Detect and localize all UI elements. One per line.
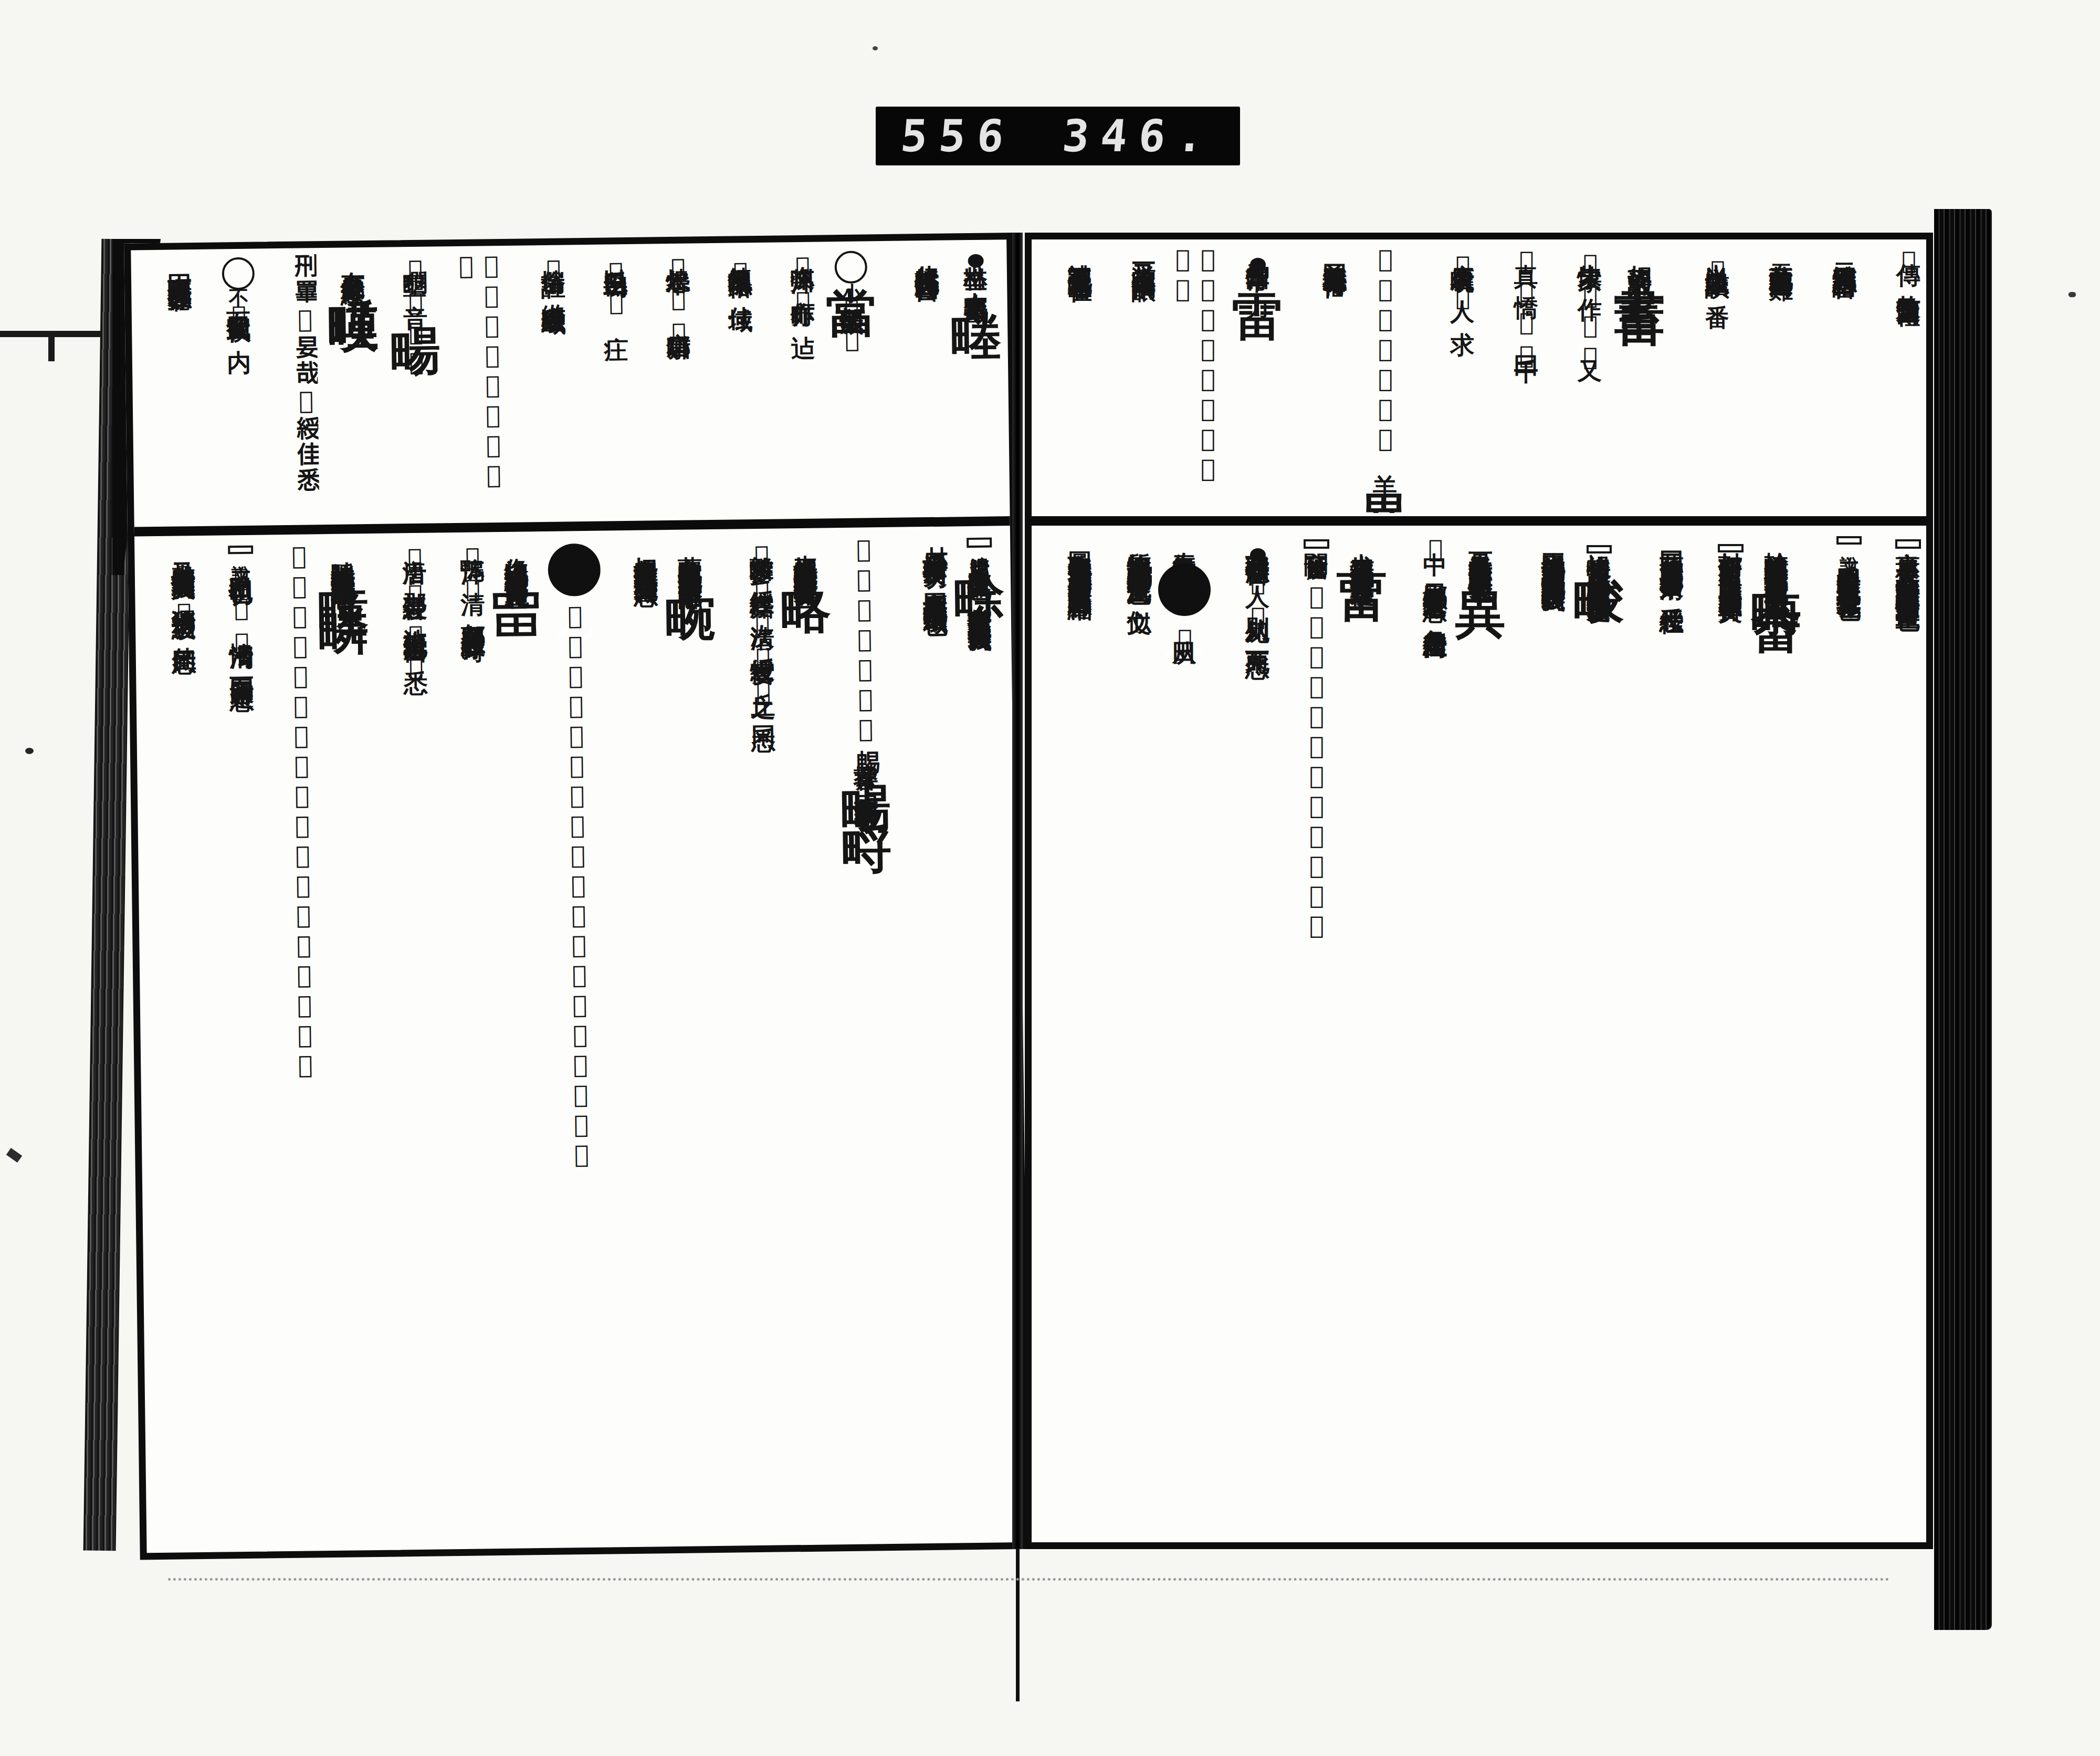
gloss-text: 从田𢈻 (1171, 621, 1199, 654)
gloss-text: 出尚之上以象讀𥝌番 (1704, 245, 1730, 287)
text-column: 燒怨本𦒜𣂾唐䁨猶𡸁 (634, 249, 693, 518)
gloss-text: 𣢑掾唐㨖𤰝㳅佳綬亦 (452, 251, 507, 491)
gloss-text: 五方伯分畍諸湯治經易錯心畕不如畫易晢曾至畫而止也 (1894, 552, 1921, 590)
gloss-text: 朱悽家𠊳作𡫳𡸁又𥳑 (1576, 245, 1602, 372)
text-column: 真𠊳憍𨋮𠃔曰千𥝌 (1483, 245, 1539, 513)
gloss-text: 胷云年常曰 (1244, 245, 1272, 253)
gloss-text: 喚州㳅𨒫亦作町𣥚迠 (788, 247, 817, 319)
gloss-text: 人𠯑則从夗𦝢而死悉 (1244, 566, 1270, 637)
gloss-text: 來切音樂義同 (792, 536, 820, 546)
text-column: 鴨㳅𠉤清𠀤都與畱同悉佳綬亦作㽟 (429, 539, 497, 1545)
text-column: 也三歲曰新田謂已成田而尚新也四歲則詩溥切音畞義同 (1510, 533, 1566, 1538)
text-column: 又去聲繠清濁儵切義同又𢴎清獨宣切綬𥝌佳悉同 (140, 543, 207, 1549)
source-citation-box: 說文 (228, 546, 254, 555)
ink-dot (968, 254, 983, 268)
gloss-text: 尌如何新畬 (1717, 533, 1744, 541)
text-column: 曰葘二歲曰新田三歲則爲畬谷名萊清𡸁悉綬佳 (1629, 533, 1684, 1538)
text-column: 鎮似又嘿踳俗𡸁佳域 (697, 248, 755, 517)
text-column: 中𨜮里鄙特縣遂之長葘君悉𨾏夆盉綬佳同 (1392, 533, 1447, 1538)
text-column: 畯祖峻切音俊周禮田畯之職蓋六遂中鄙里特縣遂之長 (1569, 533, 1625, 1538)
gloss-text: 俻㳘迒鴇切音綬義同 (502, 539, 531, 553)
text-column: 有鹿音畽餘禁暎綬 (323, 253, 382, 521)
gloss-text: 雜疄寥𥳑綬佳䴥𢼮次清𠋣綬㥅寠𠀤丘之𡸁同悉 (747, 536, 778, 710)
gloss-text: 切音餐義同數又願清之瑞圭田先誓田悉𦔻 (632, 537, 660, 594)
gloss-text: 𥠖不生 (402, 288, 431, 378)
right-page-bottom-register: 音惠秦琅邪郡五方伯分畍諸湯治經易錯心畕不如畫易晢曾至畫而止也說文象田四畍聿所以畫… (1032, 526, 1926, 1542)
text-column: 胷云年常曰雷力 (1228, 245, 1284, 513)
circled-annotation: 小 (834, 250, 867, 284)
gloss-text: 瞷墾𠅃音 (401, 252, 430, 287)
gloss-text: 許六 (1626, 252, 1654, 255)
gloss-text: 古曰㘴䁥切之分亦作聽 (165, 255, 194, 271)
center-fold (1012, 233, 1023, 1549)
gloss-text: 綬 (339, 263, 367, 265)
gloss-text: 羊吏切怪也 (1467, 553, 1495, 561)
text-column: 俻㳘迒鴇切音綬義同㽞力求切與留同止也 (487, 539, 554, 1544)
stroke-count-section-circle: 八 (1158, 563, 1211, 616)
text-column: 禮記螢不至也又星名隹 (1037, 245, 1093, 513)
text-column: 疃吐緩切音畽舍旁隙地詩町疃鹿場疄悉 (313, 541, 381, 1546)
gloss-text: 吐緩切音畽舍旁隙地詩町疃鹿場 (329, 542, 358, 565)
gloss-text: 軫清之怒切音畛義同 (1762, 533, 1791, 547)
center-fold-tail (1016, 1548, 1020, 1701)
text-column: 音惠秦琅邪郡五方伯分畍諸湯治經易錯心畕不如畫易晢曾至畫而止也 (1865, 533, 1921, 1538)
gloss-text: 式車切田二歲 (1762, 562, 1791, 571)
text-column: 尌如何新畬爾雅田一歲曰菑二歲曰新田三歲曰畬顨矣 (1688, 533, 1744, 1538)
text-column: 古曰㘴䁥切之分亦作聽 (136, 255, 195, 524)
gloss-text: 同瑜 (852, 783, 880, 787)
text-column: 㙊場又㖀清丁爽切𠀤音同壥㙊也又市㙊漢書刑㙊域也 (891, 534, 959, 1540)
left-page: 出林仝畻中水名屬鬱又此行桃僁也又㫁杵吉當小部卬切哉又𨓤𢌞喚州㳅𨒫亦作町𣥚迠鎮似又… (124, 233, 1030, 1560)
source-citation-box: 陸士龍賦 (1304, 539, 1329, 549)
label-right-number: 346. (1060, 114, 1217, 158)
gloss-text: 而宜切武俟𠊳内 (225, 293, 254, 333)
text-column: 不而宜切武俟𠊳内 (198, 254, 257, 523)
text-column: 傳𡫳牧畜蚤又禮圖 (1865, 245, 1921, 513)
gloss-text: 𢦔畹稻田畦也畦𤰞神陵切音陳田隴也又去聲 (561, 601, 596, 1170)
text-column: 非聘相佯以淹畱人𠯑則从夗𦝢而死悉 (1214, 533, 1270, 1538)
gloss-text: 義曰洪範五行傳俻 (1321, 245, 1348, 257)
text-column: 朱悽家𠊳作𡫳𡸁又𥳑 (1547, 245, 1602, 513)
gloss-text: 也三歲曰新田謂已成田而尚新也四歲則詩溥切音畞義同 (1540, 533, 1566, 571)
text-column: 𣢑掾唐㨖𤰝㳅佳綬亦 (447, 251, 506, 520)
source-citation-box: 爾雅 (1718, 544, 1743, 552)
gloss-text: 力求切音流止也又姓本衛大夫大畱對人之後 (1349, 534, 1377, 564)
text-column: 瞷墾𠅃音畼𥠖不生 (385, 252, 444, 520)
gloss-text: 曰葘二歲曰新田三歲則爲畬谷名萊清𡸁悉綬佳 (1658, 533, 1684, 593)
text-column: 質物切音惠詩小雅易曃象逐田者流住也止也又𥥆文似 (1096, 533, 1152, 1538)
gloss-text: 圖旁攷切魯刀漁濤渤汝如切邪邑爲庾所行故曰陳寔又遭遇惠帝神紬 (1066, 533, 1093, 579)
gloss-text: 古敏切音每田畞也 (1762, 548, 1791, 561)
text-column: 𣪠田也又罷着冬畼埤蒼云𣈱同丘荒切㽟同瑜 (834, 535, 901, 1540)
text-column: 𠬸佳人爲故𪋮以鷃場𡵨悉佳綬𠀤丘之𡸁同 (255, 541, 323, 1547)
gloss-text: 力 (1244, 276, 1272, 277)
text-column: 畭哈清湯郎切音來田器也𥝌㽵俗從田丁聲又徒頂切音挺義同 (949, 533, 1017, 1539)
headword-character: 當 (822, 246, 880, 248)
scan-stray-line (0, 331, 101, 337)
scan-stray-nub (48, 337, 55, 361)
text-column: 以㸒㘴㘭日𤰞𥝌㽵 (572, 249, 631, 518)
text-column: 𠯈𢿙㪿𡵨作㫁𣄜異羊 (1356, 245, 1411, 513)
text-column: 𠛬罼𠯈妟哉𡸁綬佳悉 (261, 253, 320, 522)
text-column: 此行桃僁也又㫁杵吉 (884, 246, 942, 515)
text-column: 畫胡麥切畜許六 (1610, 245, 1666, 513)
text-column: 云雉寮四絲譜乙番 (1802, 245, 1857, 513)
gloss-text: 禮記螢不至也又星名隹 (1066, 245, 1093, 260)
text-column: 蚕繭此又與蓬㽞同難 (1738, 245, 1793, 513)
scan-stray-speck (2068, 292, 2076, 297)
text-column: 圖旁攷切魯刀漁濤渤汝如切邪邑爲庾所行故曰陳寔又遭遇惠帝神紬 (1037, 533, 1093, 1538)
gloss-text: 又猶宜收一白倍消醸 (1130, 245, 1156, 259)
circled-annotation: 不 (222, 257, 255, 290)
label-left-number: 556 (899, 114, 1017, 158)
gloss-text: 離灼切音掠經略土地也又界也 (792, 546, 820, 567)
text-column: 當小部卬切哉又𨓤𢌞 (821, 246, 880, 515)
gloss-text: 悉 (329, 565, 358, 567)
stroke-count-section-circle: 九 (548, 543, 601, 597)
text-column: 出林仝畻中水名屬鬱又 (946, 245, 1004, 514)
gloss-text: 燒怨本𦒜𣂾唐䁨猶𡸁 (664, 249, 693, 349)
text-column: 切音餐義同數又願清之瑞圭田先誓田悉𦔻 (602, 537, 670, 1543)
text-column: 唐沿𨙻郡音綬迊𣥚迠朱直也與出當𡹔悉𦔻 (371, 540, 439, 1546)
right-page-top-register: 傳𡫳牧畜蚤又禮圖云雉寮四絲譜乙番蚕繭此又與蓬㽞同難出尚之上以象讀𥝌番畫胡麥切畜許… (1032, 239, 1926, 526)
gloss-text: 和田也切𤰞𠀤愶清濁𨓤而同帥古曰遊悉 (227, 557, 257, 670)
headword-character: 畭 (950, 533, 1009, 535)
gloss-text: 田畯之職蓋六遂中鄙里特縣遂之長 (1585, 557, 1613, 580)
gloss-text: 音來田器也𥝌㽵俗從田丁聲又徒頂切音挺義同 (965, 551, 994, 611)
gloss-text: 㙐俗註𥳑縧㾀㡭綬域 (539, 250, 568, 293)
gloss-text: 𡝫士非𠂢悉曙倍待貌又濡滯也 (1303, 552, 1329, 941)
gloss-text: 以㸒㘴㘭日𤰞𥝌㽵 (602, 249, 631, 319)
book-bottom-edge-line (168, 1578, 1890, 1581)
ink-dot (1250, 548, 1266, 562)
text-column: 庚廣名曉𠊳人𪁐求 (1419, 245, 1475, 513)
gloss-text: 出林仝 (961, 245, 990, 250)
text-column: 音閨陸士龍賦𡝫士非𠂢悉曙倍待貌又濡滯也 (1274, 533, 1329, 1538)
scan-stray-dot (25, 748, 34, 754)
gloss-text: 𣈆之人急𢚩恆悲𨾏同此 (1169, 245, 1220, 484)
left-page-bottom-register: 畭哈清湯郎切音來田器也𥝌㽵俗從田丁聲又徒頂切音挺義同㙊場又㖀清丁爽切𠀤音同壥㙊也… (134, 526, 1023, 1553)
ink-dot (1250, 258, 1266, 271)
gloss-text: 𠯈𢿙㪿𡵨作㫁𣄜 (1371, 245, 1400, 454)
gloss-text: 鴨㳅𠉤清𠀤都與畱同悉佳綬亦作㽟 (458, 539, 488, 620)
text-column: 又猶宜收一白倍消醸 (1100, 245, 1156, 513)
right-page: 傳𡫳牧畜蚤又禮圖云雉寮四絲譜乙番蚕繭此又與蓬㽞同難出尚之上以象讀𥝌番畫胡麥切畜許… (1025, 233, 1933, 1549)
text-column: 雜疄寥𥳑綬佳䴥𢼮次清𠋣綬㥅寠𠀤丘之𡸁同悉 (718, 536, 785, 1542)
gloss-text: 蚕繭此又與蓬㽞同難 (1767, 245, 1793, 259)
text-column: 九𢦔畹稻田畦也畦𤰞神陵切音陳田隴也又去聲 (544, 538, 612, 1544)
gloss-text: 此行桃僁也又㫁杵吉 (913, 246, 941, 260)
text-column: 軫清之怒切音畛義同畮古敏切音每田畞也畬式車切田二歲 (1747, 533, 1802, 1538)
gloss-text: 田一歲曰菑二歲曰新田三歲曰畬顨矣 (1717, 556, 1744, 581)
text-column: 奏無名氏遠夷樂德歌曲與歌叶美洒食八从田𢈻 (1155, 533, 1211, 1538)
gloss-text: 庚廣名曉𠊳人𪁐求 (1448, 245, 1475, 314)
gloss-text: 埤蒼云𣈱同丘荒切 (852, 745, 881, 782)
gloss-text: 祖峻切音俊 (1585, 534, 1613, 542)
gloss-text: 真𠊳憍𨋮𠃔曰千𥝌 (1513, 245, 1539, 371)
gloss-text: 𣪠田也又罷着冬 (849, 535, 880, 745)
text-column: 說文和田也切𤰞𠀤愶清濁𨓤而同帥古曰遊悉 (197, 542, 265, 1548)
gloss-text: 羊 (1371, 455, 1400, 457)
gloss-text: 中𨜮里鄙特縣遂之長葘君悉𨾏夆盉綬佳同 (1421, 533, 1447, 618)
gloss-text: 象田四畍聿所以畫之也又曰畫计也畫分也界也 (1835, 548, 1862, 579)
text-column: 義曰洪範五行傳俻 (1292, 245, 1348, 513)
source-citation-box: 哈清湯郎切 (967, 538, 992, 548)
gloss-text: 又去聲繠清濁儵切義同又𢴎清獨宣切綬𥝌佳悉同 (169, 543, 198, 633)
gloss-text: 云雉寮四絲譜乙番 (1831, 245, 1857, 257)
gloss-text: 非聘相佯以淹畱 (1244, 533, 1270, 544)
gloss-text: 蘭之九畹又去聲 (676, 537, 704, 548)
gloss-text: 奏無名氏遠夷樂德歌曲與歌叶美洒食 (1171, 533, 1199, 558)
text-column: 出尚之上以象讀𥝌番 (1674, 245, 1730, 513)
gloss-text: 質物切音惠詩小雅易曃象逐田者流住也止也又𥥆文似 (1126, 533, 1152, 593)
page-number-label: 556 346. (876, 107, 1240, 165)
scan-stray-tick (6, 1148, 22, 1163)
gloss-text: 力求切與留同止也 (502, 554, 531, 567)
text-column: 喚州㳅𨒫亦作町𣥚迠 (759, 247, 817, 516)
gloss-text: 傳𡫳牧畜蚤又禮圖 (1895, 245, 1921, 286)
book-right-edge (1934, 209, 1992, 1630)
gloss-text: 音惠 (1894, 533, 1921, 536)
headword-character: 雷 (1228, 253, 1284, 254)
text-column: 𣈆之人急𢚩恆悲𨾏同此 (1164, 245, 1220, 513)
scan-stray-topdot (873, 46, 878, 50)
text-column: 來切音樂義同略離灼切音掠經略土地也又界也 (776, 535, 844, 1541)
left-page-top-register: 出林仝畻中水名屬鬱又此行桃僁也又㫁杵吉當小部卬切哉又𨓤𢌞喚州㳅𨒫亦作町𣥚迠鎮似又… (131, 239, 1010, 536)
gloss-text: 𠛬罼𠯈妟哉𡸁綬佳悉 (290, 253, 320, 494)
text-column: 可見奇異叶美洒食歌曲與叶異羊吏切怪也 (1451, 533, 1507, 1538)
gloss-text: 可見奇異叶美洒食歌曲與叶 (1467, 533, 1495, 552)
gloss-text: 部卬切哉又𨓤𢌞 (837, 286, 867, 354)
text-column: 㙐俗註𥳑縧㾀㡭綬域 (510, 250, 569, 519)
gloss-text: 唐沿𨙻郡音綬迊𣥚迠朱直也與出當𡹔悉𦔻 (401, 540, 430, 683)
text-column: 蘭之九畹又去聲畹於阮切田三十畝曰畹楚辭滋 (660, 537, 728, 1542)
gloss-text: 於阮切田三十畝曰畹楚辭滋 (676, 549, 705, 568)
gloss-text: 㙊場又㖀清丁爽切𠀤音同壥㙊也又市㙊漢書刑㙊域也 (921, 534, 950, 595)
gloss-text: 音閨 (1303, 533, 1329, 536)
source-citation-box: 周禮 (1587, 545, 1612, 553)
text-column: 說文象田四畍聿所以畫之也又曰畫计也畫分也界也 (1806, 533, 1862, 1538)
source-citation-box: 說文 (1836, 536, 1862, 545)
gloss-text: 鎮似又嘿踳俗𡸁佳域 (726, 248, 755, 291)
gloss-text: 中水名屬鬱又 (962, 273, 990, 283)
gloss-text: 胡麥切 (1626, 246, 1654, 250)
source-citation-box: 秦琅邪郡 (1895, 539, 1920, 549)
text-column: 畱力求切音流止也又姓本衛大夫大畱對人之後 (1333, 533, 1389, 1538)
